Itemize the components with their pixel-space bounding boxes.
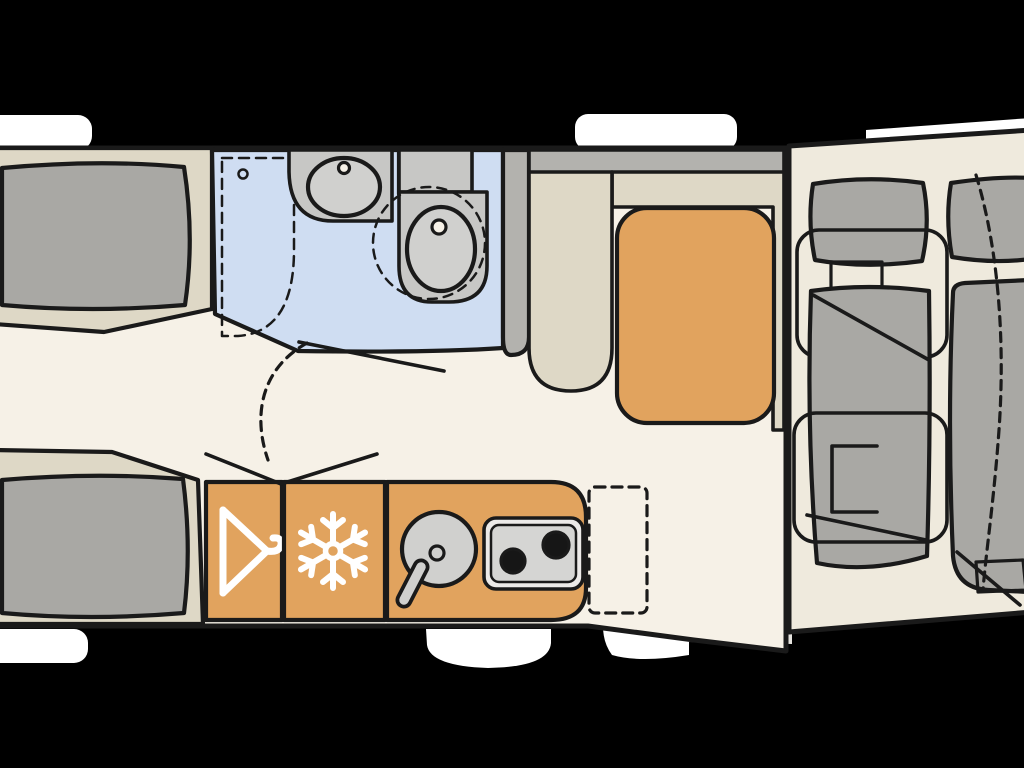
rear-bedroom [794,175,1024,605]
dinette-bench-left [529,172,612,391]
bed-right-pillow [948,178,1024,262]
dinette-counter-band [529,150,784,173]
dinette [529,150,784,430]
stove-burner-right [543,532,569,558]
seat-cushion-top [2,163,190,309]
washbasin-drain [339,163,350,174]
kitchen-sink-drain [430,546,444,560]
washroom-wall-column [503,150,529,355]
window-bottom-left [0,629,88,663]
stove-burner-left [501,549,525,573]
window-top-middle [575,114,737,150]
toilet-drain [432,220,446,234]
floorplan-canvas [0,0,1024,768]
floorplan-svg [0,0,1024,768]
fridge-unit [284,482,385,620]
dinette-table [617,208,774,423]
bed-left-pillow [810,179,926,265]
toilet-cistern [399,150,472,192]
bed-left-blanket [809,287,929,567]
seat-cushion-bottom [2,476,188,617]
window-top-left [0,115,92,150]
